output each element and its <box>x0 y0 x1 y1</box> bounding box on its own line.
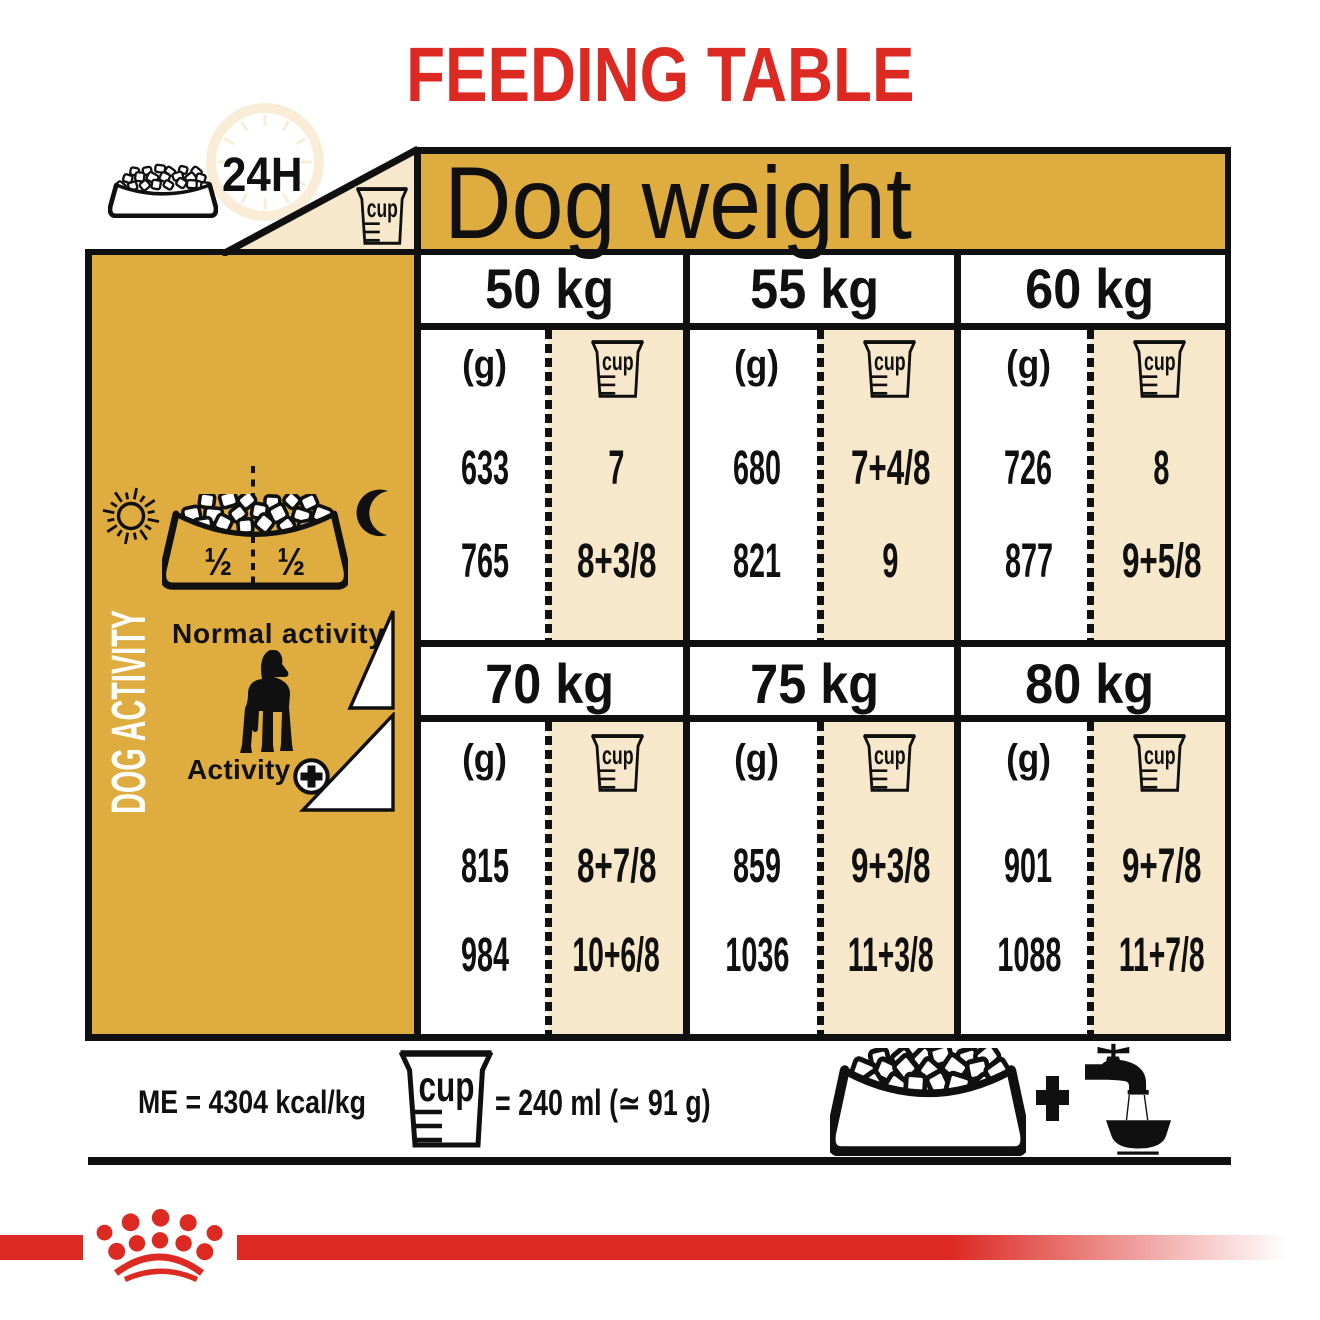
svg-text:cup: cup <box>874 742 906 770</box>
svg-text:cup: cup <box>874 348 906 376</box>
svg-text:cup: cup <box>1144 742 1176 770</box>
svg-text:cup: cup <box>419 1063 475 1111</box>
svg-text:cup: cup <box>602 348 634 376</box>
svg-text:cup: cup <box>366 195 397 223</box>
svg-text:cup: cup <box>1144 348 1176 376</box>
svg-text:cup: cup <box>602 742 634 770</box>
